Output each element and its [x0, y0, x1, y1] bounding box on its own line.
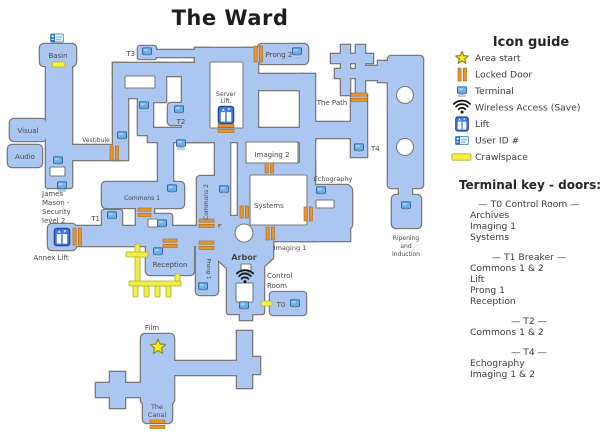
map-label-the: The [150, 403, 163, 411]
map-label-canal: Canal [148, 411, 167, 419]
map-label-mason: Mason - [42, 199, 70, 207]
terminal-icon [240, 302, 249, 312]
terminal-key-entry: Systems [470, 232, 509, 243]
crawlspace-segment [135, 244, 140, 286]
legend-panel: Icon guideArea startLocked DoorTerminalW… [452, 35, 580, 163]
terminal-icon [143, 48, 152, 58]
crawlspace-segment [126, 252, 148, 257]
map-label-audio: Audio [15, 153, 35, 161]
map-label-echography: Echography [314, 175, 353, 183]
map-label-control: Control [267, 272, 292, 280]
map-label-reception: Reception [153, 261, 188, 269]
crawlspace-segment [166, 286, 171, 297]
terminal-icon [168, 185, 177, 195]
crawlspace-segment [261, 301, 272, 306]
legend-item-label: Wireless Access (Save) [475, 103, 580, 114]
user-id-icon [51, 34, 64, 42]
ward-map: The Ward BasinVisualAudioVestibuleJamesM… [0, 0, 600, 430]
terminal-key-entry: Archives [470, 210, 509, 221]
terminal-icon [118, 132, 127, 142]
terminal-icon [199, 283, 208, 293]
terminal-icon [140, 102, 149, 112]
page-title: The Ward [172, 6, 289, 30]
terminal-key-entry: Lift [470, 274, 485, 285]
terminal-key-entry: Reception [470, 296, 516, 307]
terminal-icon [154, 248, 163, 258]
map-label-t3: T3 [125, 50, 135, 58]
terminal-icon [291, 300, 300, 310]
legend-item-label: Area start [475, 53, 521, 64]
wireless-access-icon [454, 101, 470, 114]
map-label-annex-lift: Annex Lift [33, 254, 68, 262]
map-label-t1: T1 [90, 215, 100, 223]
terminal-key-heading: Terminal key - doors: [459, 178, 600, 192]
map-label-imaging-2: Imaging 2 [254, 151, 289, 159]
terminal-icon [54, 157, 63, 167]
terminal-key-section-header: — T0 Control Room — [479, 199, 580, 210]
map-label-prong-1: Prong 1 [205, 259, 211, 280]
locked-door-icon [458, 68, 467, 81]
map-label-security: Security [42, 208, 71, 216]
legend-item-label: User ID # [475, 136, 519, 147]
map-label-room: Room [267, 282, 287, 290]
legend-item-label: Crawlspace [475, 152, 528, 163]
map-label-ripening: Ripening [393, 235, 420, 242]
legend-item-label: Lift [475, 119, 490, 130]
terminal-icon [175, 106, 184, 116]
terminal-key-entry: Echography [470, 358, 525, 369]
crawlspace-segment [133, 286, 138, 297]
crawlspace-segment [155, 286, 160, 297]
terminal-icon [458, 87, 467, 97]
map-label-film: Film [145, 324, 159, 332]
map-label-lift: Lift. [220, 98, 231, 105]
terminal-icon [220, 186, 229, 196]
terminal-icon [108, 212, 117, 222]
map-label-induction: Induction [392, 251, 420, 258]
terminal-key-section-header: — T2 — [511, 316, 547, 327]
area-start-star-icon [456, 52, 468, 64]
map-label-systems: Systems [254, 202, 284, 210]
terminal-key-section-header: — T1 Breaker — [492, 252, 566, 263]
terminal-key-panel: Terminal key - doors:— T0 Control Room —… [459, 178, 600, 380]
legend-item-label: Locked Door [475, 70, 532, 81]
map-label-basin: Basin [48, 52, 67, 60]
lift-icon [456, 117, 468, 131]
map-label-t4: T4 [370, 145, 380, 153]
crawlspace-segment [129, 281, 181, 286]
terminal-icon [317, 187, 326, 197]
terminal-icon [355, 144, 364, 154]
terminal-icon [293, 48, 302, 58]
user-id-icon [456, 137, 469, 145]
map-label-the-path: The Path [316, 99, 348, 107]
lift-icon [54, 228, 69, 245]
crawlspace-segment [52, 62, 65, 67]
map-label-prong-2: Prong 2 [266, 51, 293, 59]
crawlspace-segment [144, 286, 149, 297]
crawlspace-segment [175, 274, 180, 281]
crawlspace-icon [452, 154, 471, 160]
map-label-t2: T2 [176, 118, 186, 126]
terminal-key-entry: Imaging 1 & 2 [470, 369, 535, 380]
legend-item-label: Terminal [474, 86, 514, 97]
terminal-key-entry: Commons 1 & 2 [470, 263, 544, 274]
terminal-icon [402, 202, 411, 212]
legend-heading: Icon guide [493, 35, 570, 50]
map-label-imaging-1: Imaging 1 [274, 244, 307, 252]
map-label-visual: Visual [18, 127, 39, 135]
terminal-icon [177, 140, 186, 150]
map-label-vestibule: Vestibule [82, 137, 110, 144]
map-label-james: James [41, 190, 63, 198]
map-label-server: Server [216, 91, 236, 98]
terminal-key-entry: Imaging 1 [470, 221, 516, 232]
map-page: The Ward BasinVisualAudioVestibuleJamesM… [0, 0, 600, 430]
map-label-arbor: Arbor [231, 253, 256, 262]
map-label-level-2: level 2 [42, 217, 65, 225]
map-label-and: and [400, 243, 411, 250]
terminal-key-section-header: — T4 — [511, 347, 547, 358]
map-label-t0: T0 [276, 301, 286, 309]
terminal-key-entry: Prong 1 [470, 285, 505, 296]
map-label-commons-1: Commons 1 [124, 195, 160, 202]
terminal-icon [158, 220, 167, 230]
map-label-commons-2: Commons 2 [203, 184, 210, 220]
terminal-key-entry: Commons 1 & 2 [470, 327, 544, 338]
lift-icon [218, 106, 233, 123]
